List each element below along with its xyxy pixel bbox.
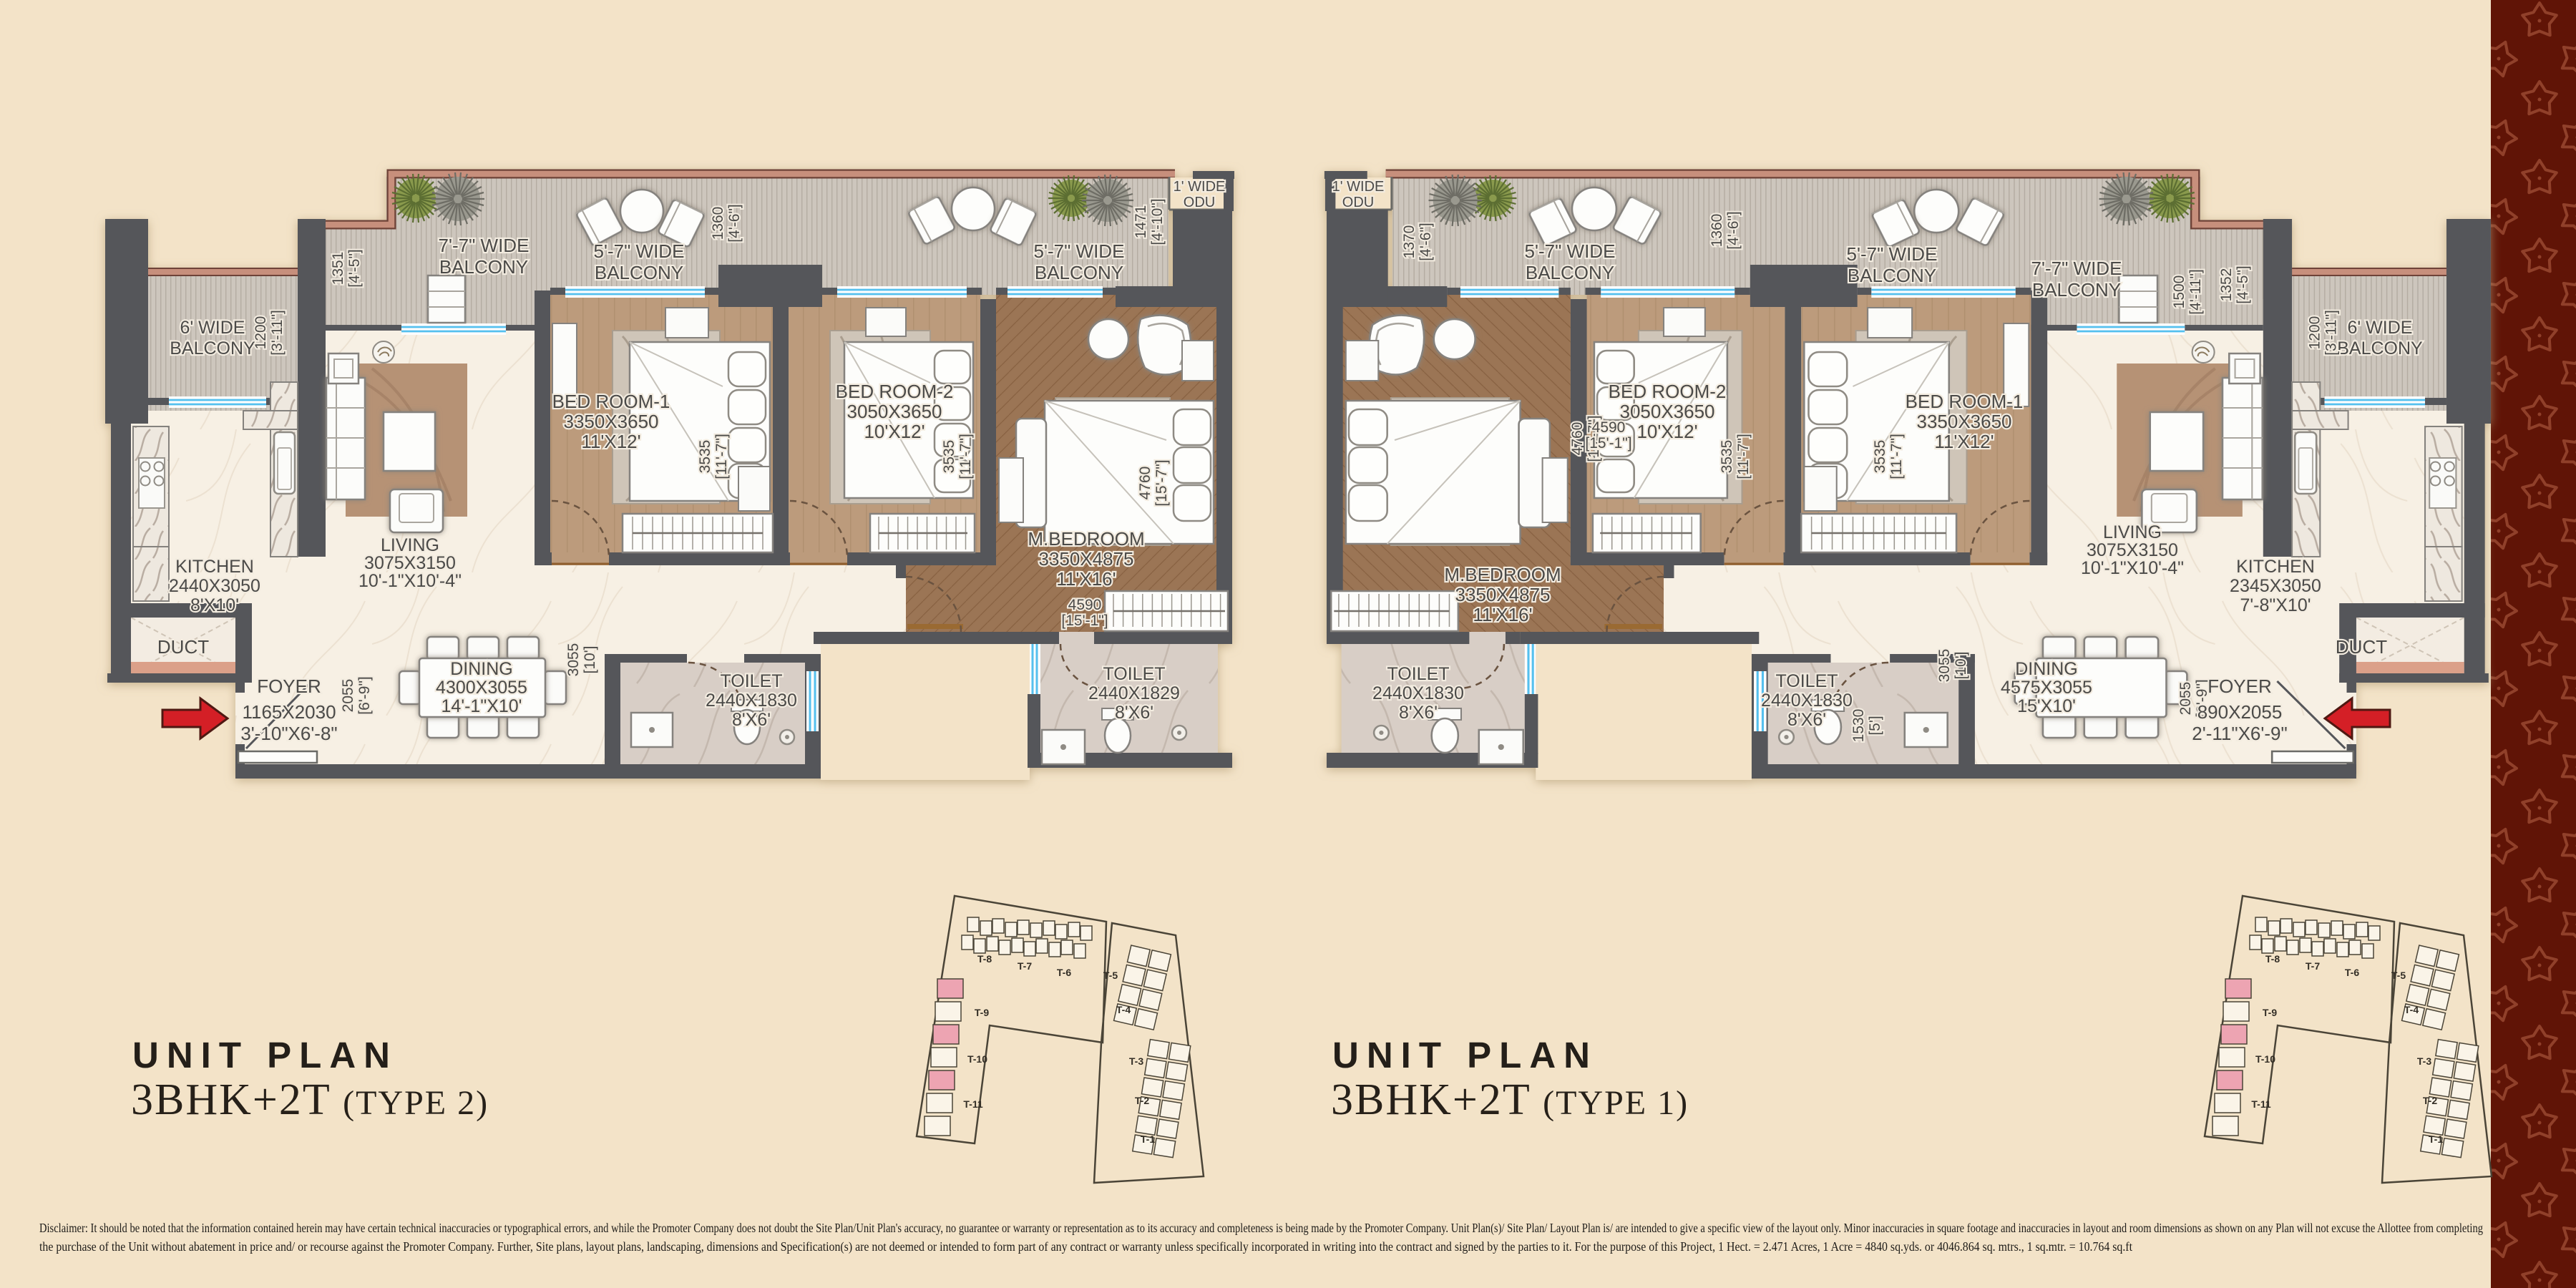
svg-text:1370: 1370 [1401,225,1418,259]
svg-text:[15'-1"]: [15'-1"] [1585,435,1631,452]
svg-text:[11'-7"]: [11'-7"] [713,434,730,479]
svg-text:[15'-7"]: [15'-7"] [1153,459,1170,506]
svg-text:3050X3650: 3050X3650 [1619,401,1714,422]
svg-text:T-6: T-6 [1057,967,1071,978]
svg-text:[4'-6"]: [4'-6"] [726,204,743,242]
svg-text:1351: 1351 [330,252,346,286]
svg-text:3075X3150: 3075X3150 [2087,540,2178,560]
svg-text:14'-1"X10': 14'-1"X10' [441,696,522,716]
svg-text:UNIT PLAN: UNIT PLAN [132,1035,398,1075]
svg-text:10'X12': 10'X12' [1636,421,1697,442]
svg-text:[4'-5"]: [4'-5"] [2235,265,2251,303]
svg-text:11'X16': 11'X16' [1056,568,1116,590]
svg-text:BALCONY: BALCONY [595,262,683,283]
svg-text:3350X4875: 3350X4875 [1038,548,1133,570]
svg-text:5'-7" WIDE: 5'-7" WIDE [1034,240,1125,262]
svg-text:T-8: T-8 [977,953,992,965]
svg-text:ODU: ODU [1342,195,1374,210]
svg-text:[4'-6"]: [4'-6"] [1418,223,1434,260]
svg-text:T-3: T-3 [1129,1055,1143,1067]
svg-text:T-1: T-1 [1141,1133,1155,1145]
svg-text:1200: 1200 [2306,316,2323,350]
svg-text:5'-7" WIDE: 5'-7" WIDE [1525,240,1616,262]
svg-text:[11'-7"]: [11'-7"] [957,434,974,479]
svg-text:T-9: T-9 [975,1007,989,1018]
svg-text:3350X3650: 3350X3650 [563,411,658,432]
svg-text:Disclaimer: It should be noted: Disclaimer: It should be noted that the … [39,1221,2483,1236]
svg-text:BALCONY: BALCONY [439,256,528,278]
svg-text:ODU: ODU [1184,195,1215,210]
svg-text:4590: 4590 [1068,597,1102,613]
svg-text:1500: 1500 [2171,275,2187,309]
svg-text:2440X1830: 2440X1830 [706,691,797,711]
svg-text:5'-7" WIDE: 5'-7" WIDE [1847,243,1938,265]
svg-text:BALCONY: BALCONY [1848,265,1936,286]
svg-text:BALCONY: BALCONY [1526,262,1614,283]
svg-text:1165X2030: 1165X2030 [242,701,336,723]
svg-text:4590: 4590 [1592,419,1626,436]
svg-text:BALCONY: BALCONY [170,338,255,358]
svg-text:[4'-10"]: [4'-10"] [1149,198,1166,245]
svg-text:[4'-6"]: [4'-6"] [1725,211,1742,249]
svg-text:T-2: T-2 [2423,1095,2437,1106]
svg-text:BALCONY: BALCONY [2032,279,2121,301]
svg-text:10'-1"X10'-4": 10'-1"X10'-4" [358,571,462,591]
svg-text:[4'-11"]: [4'-11"] [2187,269,2204,315]
svg-text:DINING: DINING [2015,659,2078,679]
svg-text:BED ROOM-2: BED ROOM-2 [1609,381,1727,402]
svg-text:1352: 1352 [2218,268,2235,302]
svg-text:[3'-11"]: [3'-11"] [2323,310,2339,356]
svg-text:[11'-7"]: [11'-7"] [1735,434,1752,479]
svg-text:T-11: T-11 [2251,1098,2270,1110]
svg-text:DUCT: DUCT [157,636,209,658]
svg-text:15'X10': 15'X10' [2017,696,2076,716]
svg-text:LIVING: LIVING [381,535,439,555]
svg-text:6' WIDE: 6' WIDE [2348,318,2413,338]
svg-text:T-4: T-4 [1116,1004,1131,1015]
svg-text:7'-8"X10': 7'-8"X10' [2240,595,2311,615]
svg-text:the purchase of the Unit witho: the purchase of the Unit without abateme… [39,1239,2132,1254]
svg-text:3055: 3055 [565,643,582,677]
svg-text:3350X4875: 3350X4875 [1455,584,1550,605]
svg-text:T-10: T-10 [2255,1053,2275,1065]
svg-text:KITCHEN: KITCHEN [175,557,254,577]
svg-text:TOILET: TOILET [1103,664,1165,684]
svg-text:3075X3150: 3075X3150 [364,553,456,573]
svg-text:KITCHEN: KITCHEN [2236,557,2315,577]
svg-text:T-5: T-5 [2391,970,2406,981]
svg-text:LIVING: LIVING [2103,522,2162,542]
svg-text:3055: 3055 [1936,649,1953,683]
svg-text:[15'-1"]: [15'-1"] [1061,613,1108,629]
svg-text:10'X12': 10'X12' [864,421,924,442]
svg-text:2440X1830: 2440X1830 [1372,683,1464,703]
svg-text:1' WIDE: 1' WIDE [1332,179,1385,195]
svg-text:2345X3050: 2345X3050 [2230,576,2321,596]
svg-text:3050X3650: 3050X3650 [847,401,942,422]
svg-text:T-6: T-6 [2345,967,2359,978]
svg-text:[5']: [5'] [1867,716,1883,735]
svg-text:1360: 1360 [1709,214,1725,248]
svg-text:T-11: T-11 [963,1098,982,1110]
svg-text:1471: 1471 [1133,205,1149,239]
svg-text:DUCT: DUCT [2336,636,2387,658]
svg-text:M.BEDROOM: M.BEDROOM [1028,528,1144,550]
svg-text:BED ROOM-2: BED ROOM-2 [836,381,954,402]
svg-text:10'-1"X10'-4": 10'-1"X10'-4" [2081,558,2184,578]
svg-text:T-7: T-7 [2306,960,2320,972]
svg-text:2055: 2055 [340,679,356,713]
svg-text:[10']: [10'] [1953,651,1969,679]
svg-text:8'X6': 8'X6' [1399,703,1438,723]
svg-text:TOILET: TOILET [1775,671,1838,691]
svg-text:8'X6': 8'X6' [1115,703,1153,723]
svg-text:6' WIDE: 6' WIDE [180,318,245,338]
svg-text:8'X6': 8'X6' [732,710,771,730]
svg-text:BALCONY: BALCONY [2337,338,2423,358]
svg-text:FOYER: FOYER [257,675,321,697]
svg-text:[10']: [10'] [582,645,598,673]
svg-text:T-2: T-2 [1135,1095,1149,1106]
svg-text:2440X1829: 2440X1829 [1088,683,1180,703]
svg-text:BALCONY: BALCONY [1035,262,1123,283]
svg-text:T-7: T-7 [1018,960,1032,972]
svg-text:T-10: T-10 [967,1053,987,1065]
svg-text:3535: 3535 [1872,440,1888,474]
svg-text:3535: 3535 [941,440,957,474]
svg-text:4760: 4760 [1137,467,1153,500]
svg-text:T-1: T-1 [2429,1133,2443,1145]
svg-text:890X2055: 890X2055 [2197,701,2283,723]
svg-text:BED ROOM-1: BED ROOM-1 [552,391,670,412]
svg-text:T-9: T-9 [2263,1007,2277,1018]
svg-text:T-3: T-3 [2417,1055,2431,1067]
svg-text:3535: 3535 [697,440,713,474]
svg-text:[3'-11"]: [3'-11"] [269,310,286,356]
svg-text:M.BEDROOM: M.BEDROOM [1444,564,1561,585]
svg-text:T-5: T-5 [1103,970,1118,981]
svg-text:[11'-7"]: [11'-7"] [1888,434,1905,479]
svg-text:2440X3050: 2440X3050 [169,576,260,596]
svg-text:1' WIDE: 1' WIDE [1174,179,1226,195]
svg-text:UNIT PLAN: UNIT PLAN [1332,1035,1598,1075]
svg-text:BED ROOM-1: BED ROOM-1 [1906,391,2024,412]
svg-text:3'-10"X6'-8": 3'-10"X6'-8" [240,723,337,744]
svg-text:TOILET: TOILET [720,671,782,691]
svg-text:FOYER: FOYER [2207,675,2272,697]
svg-text:7'-7" WIDE: 7'-7" WIDE [439,235,530,256]
svg-text:1360: 1360 [710,207,726,240]
svg-text:1200: 1200 [253,316,269,350]
svg-text:TOILET: TOILET [1387,664,1449,684]
svg-text:1530: 1530 [1850,709,1867,743]
svg-text:8'X10': 8'X10' [190,595,239,615]
svg-text:7'-7" WIDE: 7'-7" WIDE [2031,258,2122,279]
svg-text:4760: 4760 [1569,422,1586,456]
svg-text:4575X3055: 4575X3055 [2001,678,2092,698]
svg-text:2'-11"X6'-9": 2'-11"X6'-9" [2192,723,2287,744]
svg-text:[6'-9"]: [6'-9"] [356,676,373,714]
svg-text:2055: 2055 [2177,682,2194,716]
svg-text:2440X1830: 2440X1830 [1761,691,1853,711]
svg-text:4300X3055: 4300X3055 [436,678,527,698]
svg-text:[4'-5"]: [4'-5"] [346,249,363,287]
svg-text:11'X16': 11'X16' [1473,604,1532,625]
svg-text:T-8: T-8 [2265,953,2280,965]
svg-text:11'X12': 11'X12' [1934,431,1994,452]
svg-text:3535: 3535 [1719,440,1735,474]
svg-text:3350X3650: 3350X3650 [1916,411,2011,432]
svg-text:11'X12': 11'X12' [581,431,640,452]
svg-text:DINING: DINING [450,659,513,679]
svg-text:5'-7" WIDE: 5'-7" WIDE [594,240,685,262]
svg-text:8'X6': 8'X6' [1787,710,1826,730]
svg-text:T-4: T-4 [2404,1004,2419,1015]
